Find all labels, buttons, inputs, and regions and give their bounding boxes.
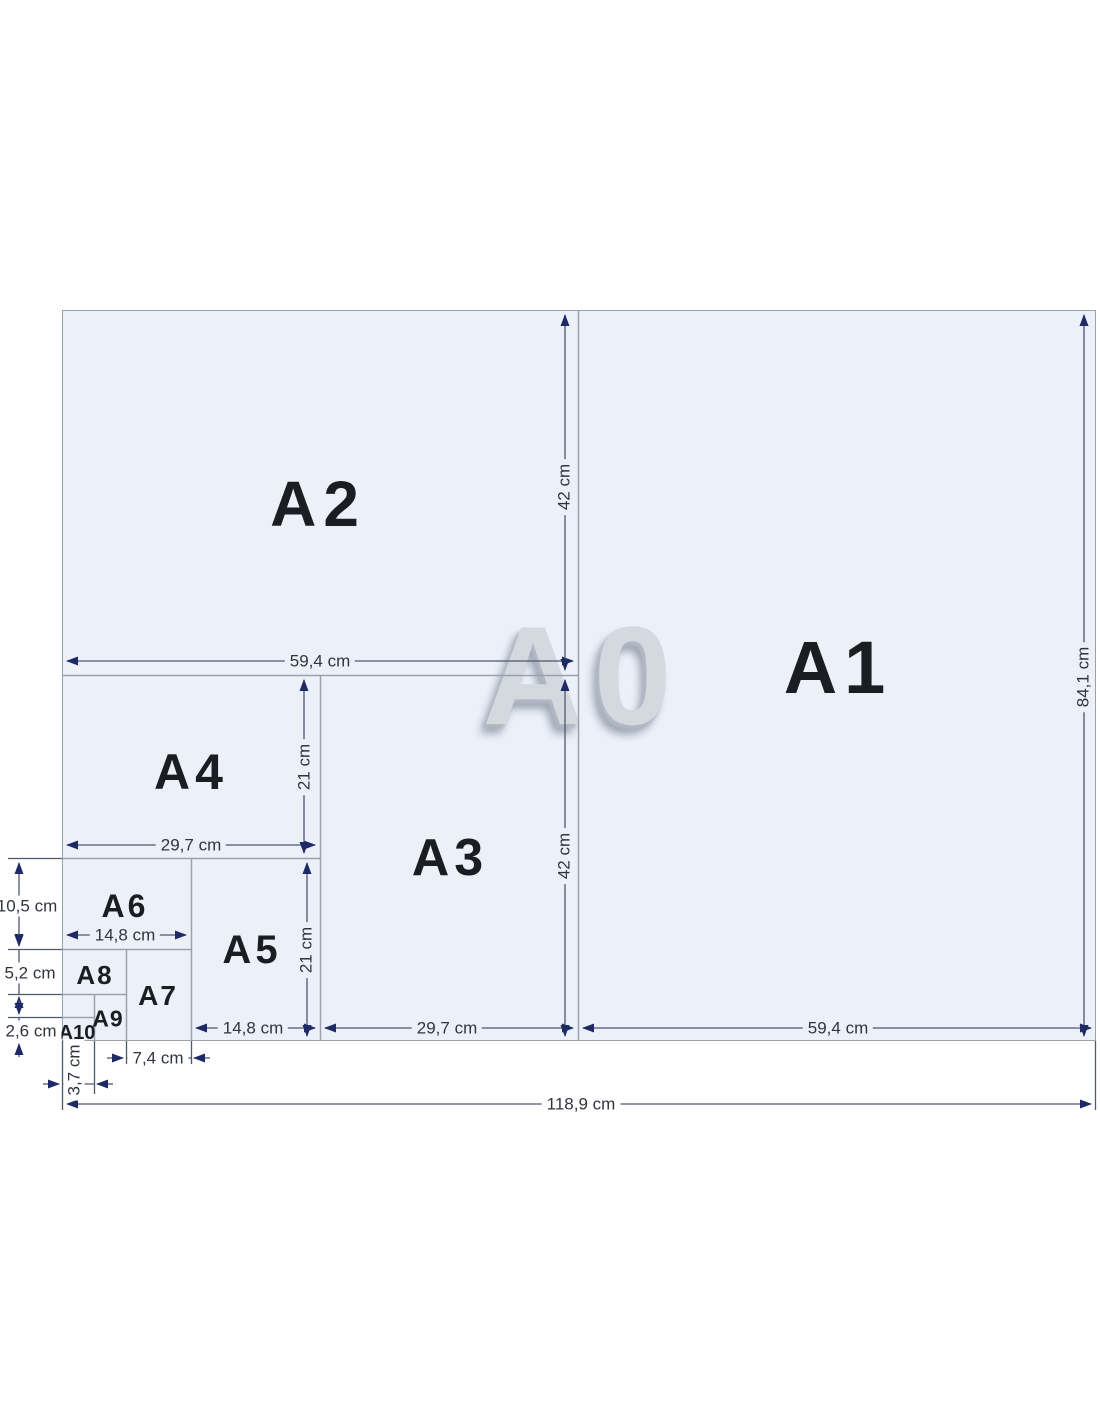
dimension-lines-layer <box>0 0 1100 1422</box>
label-a3: A3 <box>412 832 488 884</box>
dim-a1-height: 84,1 cm <box>1073 642 1094 712</box>
label-a9: A9 <box>92 1008 123 1031</box>
label-a5: A5 <box>222 930 281 970</box>
paper-sizes-diagram: A0 <box>0 0 1100 1422</box>
dimension-lines <box>19 315 1091 1104</box>
label-a7: A7 <box>138 982 178 1010</box>
dim-a7-width: 7,4 cm <box>127 1048 188 1069</box>
dim-a6-height: 10,5 cm <box>0 896 62 917</box>
dim-a10-width: 3,7 cm <box>64 1039 85 1100</box>
label-a1: A1 <box>784 631 893 705</box>
dim-a3-height: 42 cm <box>554 828 575 884</box>
dim-a4-width: 29,7 cm <box>156 835 226 856</box>
label-a6: A6 <box>102 890 149 922</box>
dim-a6-width: 14,8 cm <box>90 925 160 946</box>
label-a4: A4 <box>154 747 228 797</box>
dim-a10-height: 2,6 cm <box>0 1021 61 1042</box>
dim-a0-width: 118,9 cm <box>542 1094 621 1115</box>
dim-a2-height: 42 cm <box>554 459 575 515</box>
dim-a4-height: 21 cm <box>294 739 315 795</box>
dim-a2-width: 59,4 cm <box>285 651 355 672</box>
dim-a3-width: 29,7 cm <box>412 1018 482 1039</box>
dim-a1-width: 59,4 cm <box>803 1018 873 1039</box>
dim-a5-height: 21 cm <box>296 922 317 978</box>
dim-a8-height: 5,2 cm <box>0 963 61 984</box>
label-a8: A8 <box>76 962 113 988</box>
dim-a5-width: 14,8 cm <box>218 1018 288 1039</box>
label-a2: A2 <box>270 472 366 536</box>
